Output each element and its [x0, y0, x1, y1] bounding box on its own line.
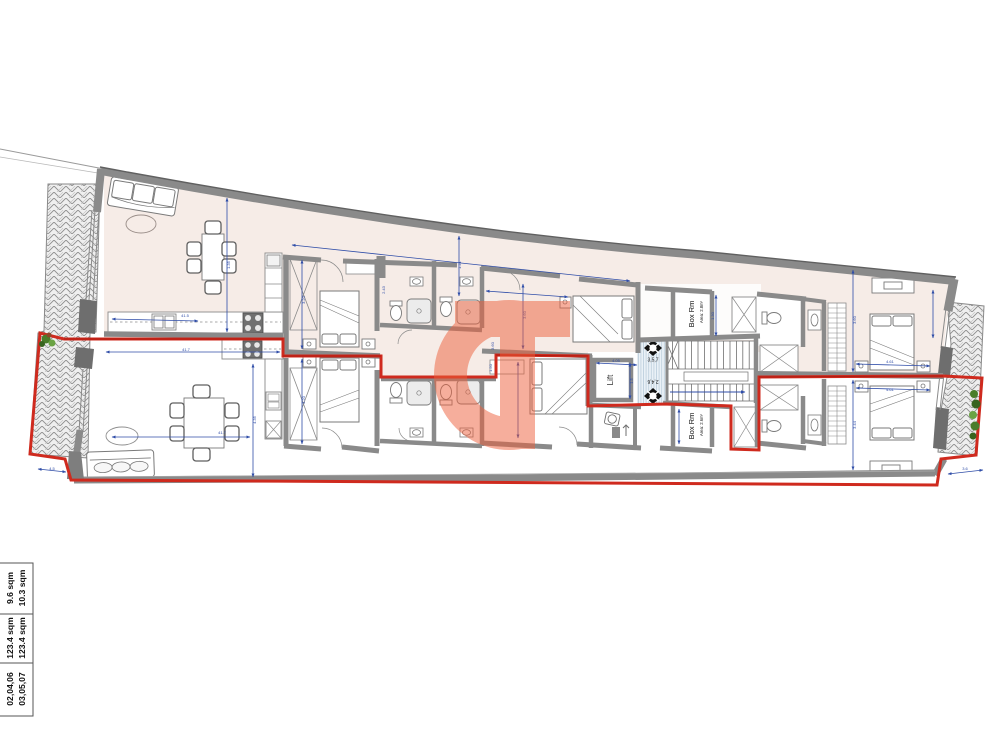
svg-text:41.7: 41.7 [218, 430, 227, 435]
svg-text:02,04,06: 02,04,06 [5, 672, 15, 706]
svg-text:3.20: 3.20 [301, 295, 306, 304]
svg-text:2,4,6: 2,4,6 [647, 378, 658, 384]
svg-text:1.35: 1.35 [226, 260, 231, 269]
svg-text:03,05,07: 03,05,07 [17, 672, 27, 706]
svg-text:10.3 sqm: 10.3 sqm [17, 569, 27, 606]
svg-text:3.60: 3.60 [490, 341, 495, 350]
svg-text:3,5,7: 3,5,7 [647, 358, 658, 364]
svg-text:3.60: 3.60 [852, 315, 857, 324]
svg-text:1.30: 1.30 [710, 311, 715, 320]
svg-text:4.35: 4.35 [252, 415, 257, 424]
svg-text:Box Rm: Box Rm [687, 413, 696, 440]
svg-text:1.21: 1.21 [457, 260, 462, 269]
svg-text:4.05: 4.05 [612, 358, 621, 363]
svg-text:123.4 sqm: 123.4 sqm [5, 617, 15, 659]
svg-text:Lift: Lift [606, 374, 615, 385]
svg-text:Area: 2.6m²: Area: 2.6m² [699, 413, 704, 435]
svg-text:9.6 sqm: 9.6 sqm [5, 572, 15, 604]
svg-text:1.5: 1.5 [629, 377, 634, 383]
svg-text:123.4 sqm: 123.4 sqm [17, 617, 27, 659]
svg-text:3.44: 3.44 [852, 420, 857, 429]
svg-text:3.6: 3.6 [962, 466, 968, 471]
svg-text:4.5: 4.5 [49, 466, 55, 471]
svg-text:Area: 2.8m²: Area: 2.8m² [699, 300, 704, 322]
svg-text:4.61: 4.61 [886, 359, 895, 364]
svg-text:2.43: 2.43 [381, 285, 386, 294]
svg-text:41.7: 41.7 [182, 347, 191, 352]
svg-text:1.50: 1.50 [488, 363, 493, 372]
svg-text:3.20: 3.20 [301, 395, 306, 404]
svg-text:4.61: 4.61 [886, 387, 895, 392]
svg-text:Box Rm: Box Rm [687, 301, 696, 328]
svg-text:41.5: 41.5 [181, 313, 190, 318]
